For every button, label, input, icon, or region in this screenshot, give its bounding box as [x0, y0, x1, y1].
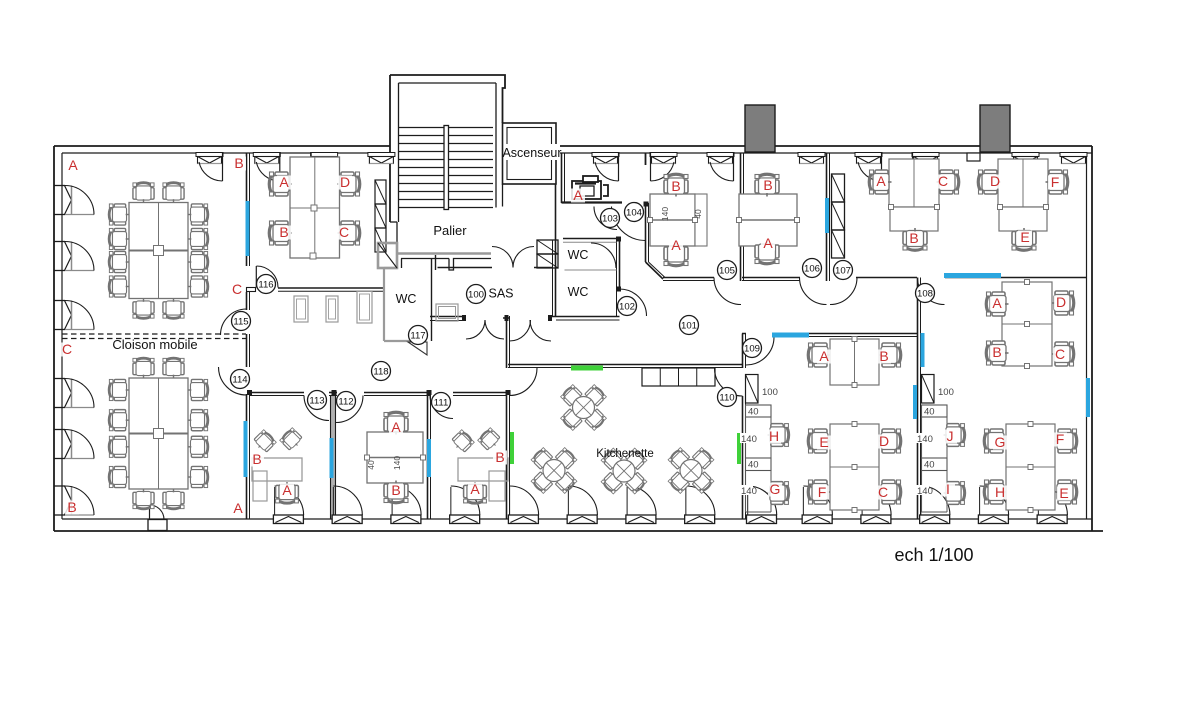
svg-text:40: 40: [924, 460, 935, 471]
svg-text:40: 40: [748, 460, 759, 471]
svg-text:B: B: [992, 344, 1001, 360]
svg-text:F: F: [1051, 174, 1060, 190]
svg-text:100: 100: [938, 387, 954, 398]
svg-text:B: B: [391, 482, 400, 498]
svg-text:C: C: [339, 224, 349, 240]
svg-text:100: 100: [762, 387, 778, 398]
svg-text:Cloison mobile: Cloison mobile: [112, 337, 197, 352]
svg-text:112: 112: [338, 396, 353, 407]
svg-text:A: A: [282, 482, 292, 498]
svg-text:C: C: [1055, 346, 1065, 362]
svg-text:140: 140: [741, 486, 757, 497]
svg-text:140: 140: [660, 207, 670, 221]
svg-text:110: 110: [719, 392, 734, 403]
svg-text:E: E: [1059, 485, 1068, 501]
svg-text:E: E: [1020, 229, 1029, 245]
svg-text:H: H: [995, 484, 1005, 500]
svg-text:C: C: [878, 484, 888, 500]
svg-text:117: 117: [410, 330, 425, 341]
svg-text:A: A: [819, 348, 829, 364]
svg-text:A: A: [279, 174, 289, 190]
svg-text:113: 113: [309, 395, 324, 406]
svg-text:103: 103: [602, 213, 618, 224]
svg-text:D: D: [340, 174, 350, 190]
svg-text:D: D: [1056, 294, 1066, 310]
svg-text:B: B: [279, 224, 288, 240]
svg-text:A: A: [470, 481, 480, 497]
svg-text:A: A: [68, 157, 78, 173]
svg-text:107: 107: [835, 265, 851, 276]
svg-text:G: G: [770, 481, 781, 497]
svg-text:D: D: [990, 173, 1000, 189]
svg-text:A: A: [233, 500, 243, 516]
svg-text:114: 114: [232, 374, 248, 385]
svg-text:B: B: [879, 348, 888, 364]
svg-text:104: 104: [626, 207, 643, 218]
svg-text:J: J: [947, 428, 954, 444]
svg-text:40: 40: [693, 209, 703, 219]
svg-text:Ascenseur: Ascenseur: [502, 146, 561, 160]
svg-text:140: 140: [392, 456, 402, 470]
svg-text:B: B: [671, 178, 680, 194]
svg-text:I: I: [946, 481, 950, 497]
svg-text:B: B: [495, 449, 504, 465]
svg-text:100: 100: [468, 289, 484, 300]
svg-text:B: B: [252, 451, 261, 467]
svg-text:A: A: [573, 187, 583, 203]
svg-text:40: 40: [366, 460, 376, 470]
svg-text:A: A: [992, 295, 1002, 311]
svg-text:G: G: [995, 434, 1006, 450]
svg-text:B: B: [763, 177, 772, 193]
svg-text:109: 109: [744, 343, 760, 354]
svg-text:F: F: [1056, 431, 1065, 447]
svg-text:H: H: [769, 428, 779, 444]
svg-text:WC: WC: [568, 285, 589, 299]
svg-text:WC: WC: [396, 292, 417, 306]
svg-text:A: A: [876, 173, 886, 189]
svg-text:WC: WC: [568, 248, 589, 262]
svg-text:111: 111: [434, 397, 449, 408]
svg-text:102: 102: [619, 301, 635, 312]
svg-text:40: 40: [748, 407, 759, 418]
svg-text:116: 116: [258, 279, 273, 290]
svg-text:40: 40: [924, 407, 935, 418]
svg-text:A: A: [763, 235, 773, 251]
svg-text:140: 140: [741, 434, 757, 445]
svg-text:B: B: [234, 155, 243, 171]
svg-text:A: A: [671, 237, 681, 253]
svg-text:A: A: [391, 419, 401, 435]
svg-text:108: 108: [917, 288, 933, 299]
svg-text:140: 140: [917, 486, 933, 497]
svg-text:118: 118: [373, 366, 388, 377]
svg-text:106: 106: [804, 263, 820, 274]
svg-text:Kitchenette: Kitchenette: [596, 448, 654, 460]
svg-text:B: B: [67, 499, 76, 515]
svg-text:D: D: [879, 433, 889, 449]
svg-text:105: 105: [719, 265, 735, 276]
svg-text:F: F: [818, 484, 827, 500]
svg-text:Palier: Palier: [433, 223, 467, 238]
svg-text:SAS: SAS: [488, 287, 513, 301]
svg-text:ech 1/100: ech 1/100: [894, 545, 973, 565]
svg-text:101: 101: [681, 320, 697, 331]
svg-text:C: C: [232, 281, 242, 297]
svg-text:115: 115: [233, 316, 248, 327]
svg-text:E: E: [819, 434, 828, 450]
svg-text:C: C: [62, 341, 72, 357]
svg-text:C: C: [938, 173, 948, 189]
svg-text:140: 140: [917, 434, 933, 445]
svg-text:B: B: [909, 230, 918, 246]
